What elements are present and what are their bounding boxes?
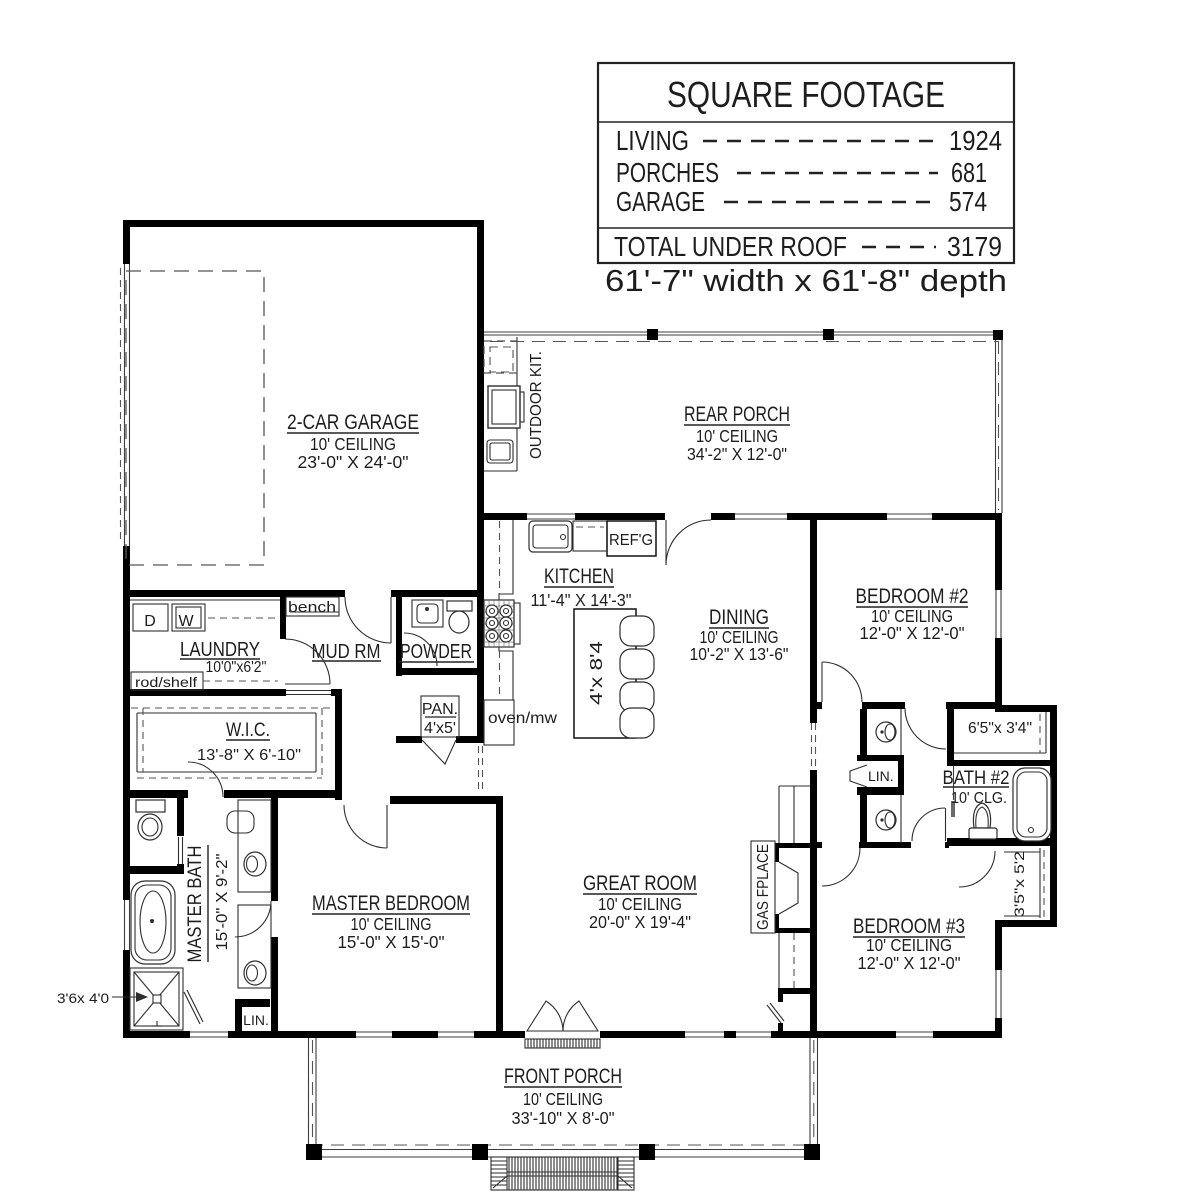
svg-text:12'-0" X 12'-0": 12'-0" X 12'-0" (858, 953, 961, 973)
svg-text:GARAGE: GARAGE (616, 186, 705, 217)
svg-text:574: 574 (949, 186, 987, 217)
svg-text:MASTER BATH: MASTER BATH (185, 846, 206, 963)
svg-text:PAN.: PAN. (422, 701, 458, 718)
svg-text:oven/mw: oven/mw (488, 710, 557, 727)
svg-text:BEDROOM #2: BEDROOM #2 (856, 585, 969, 608)
svg-text:GAS FPLACE: GAS FPLACE (755, 844, 772, 930)
svg-text:REF'G: REF'G (609, 532, 653, 549)
svg-text:6'5"x 3'4": 6'5"x 3'4" (968, 720, 1032, 737)
svg-text:33'-10" X 8'-0": 33'-10" X 8'-0" (512, 1108, 615, 1128)
svg-text:W.I.C.: W.I.C. (226, 720, 270, 741)
svg-text:10' CEILING: 10' CEILING (310, 434, 396, 454)
svg-text:LIN.: LIN. (243, 1012, 269, 1028)
svg-text:12'-0" X 12'-0": 12'-0" X 12'-0" (860, 623, 965, 643)
svg-text:LIVING: LIVING (616, 125, 689, 156)
svg-text:MUD RM: MUD RM (312, 641, 381, 663)
svg-text:4'x5': 4'x5' (424, 720, 456, 737)
svg-text:LAUNDRY: LAUNDRY (180, 639, 260, 661)
svg-text:DINING: DINING (709, 606, 769, 629)
svg-text:34'-2" X 12'-0": 34'-2" X 12'-0" (687, 444, 787, 464)
svg-text:REAR PORCH: REAR PORCH (684, 403, 790, 426)
svg-text:15'-0" X 15'-0": 15'-0" X 15'-0" (338, 932, 445, 952)
svg-text:15'-0" X 9'-2": 15'-0" X 9'-2" (214, 854, 231, 951)
svg-text:KITCHEN: KITCHEN (544, 565, 614, 588)
svg-text:LIN.: LIN. (868, 768, 894, 784)
svg-text:13'-8" X 6'-10": 13'-8" X 6'-10" (197, 747, 301, 764)
svg-text:2-CAR GARAGE: 2-CAR GARAGE (287, 411, 419, 434)
svg-text:PORCHES: PORCHES (616, 157, 719, 188)
svg-text:MASTER BEDROOM: MASTER BEDROOM (312, 892, 470, 915)
svg-text:20'-0" X 19'-4": 20'-0" X 19'-4" (589, 912, 691, 932)
svg-text:SQUARE FOOTAGE: SQUARE FOOTAGE (667, 74, 945, 115)
svg-text:10' CEILING: 10' CEILING (523, 1089, 603, 1109)
svg-text:10' CEILING: 10' CEILING (598, 894, 682, 914)
svg-text:rod/shelf: rod/shelf (135, 674, 197, 690)
svg-text:OUTDOOR KIT.: OUTDOOR KIT. (528, 351, 545, 459)
svg-text:10' CEILING: 10' CEILING (351, 914, 432, 934)
svg-text:FRONT PORCH: FRONT PORCH (504, 1065, 622, 1088)
svg-text:D: D (144, 613, 156, 630)
svg-text:10' CEILING: 10' CEILING (866, 935, 952, 955)
svg-text:3'6x 4'0: 3'6x 4'0 (57, 990, 109, 1006)
svg-text:10'0"x6'2": 10'0"x6'2" (206, 659, 267, 676)
svg-text:23'-0" X 24'-0": 23'-0" X 24'-0" (298, 452, 409, 472)
svg-text:681: 681 (951, 157, 987, 188)
svg-text:10'-2" X 13'-6": 10'-2" X 13'-6" (690, 644, 789, 664)
svg-text:11'-4" X 14'-3": 11'-4" X 14'-3" (531, 590, 632, 610)
svg-text:3179: 3179 (947, 231, 1002, 262)
svg-text:3'5"x 5'2: 3'5"x 5'2 (1011, 851, 1027, 917)
svg-text:bench: bench (288, 599, 336, 616)
svg-text:GREAT ROOM: GREAT ROOM (583, 872, 697, 895)
svg-text:TOTAL UNDER ROOF: TOTAL UNDER ROOF (614, 231, 847, 262)
svg-text:1924: 1924 (949, 125, 1002, 156)
svg-text:10' CEILING: 10' CEILING (696, 426, 778, 446)
svg-text:4'x 8'4: 4'x 8'4 (586, 641, 606, 705)
svg-text:BATH #2: BATH #2 (943, 768, 1010, 789)
svg-text:61'-7" width x 61'-8" depth: 61'-7" width x 61'-8" depth (605, 263, 1007, 298)
